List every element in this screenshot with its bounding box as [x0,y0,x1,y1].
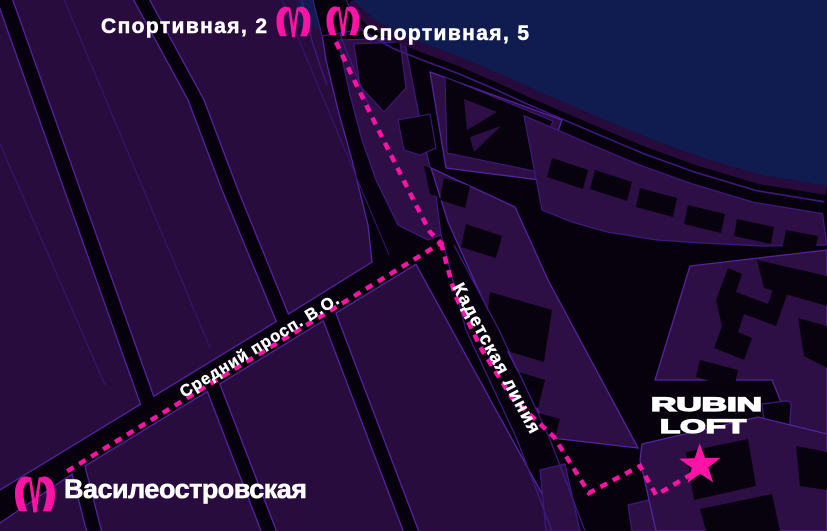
svg-text:RUBIN: RUBIN [651,394,762,416]
svg-text:Василеостровская: Василеостровская [64,474,307,504]
svg-text:Спортивная, 5: Спортивная, 5 [363,22,531,45]
svg-text:Спортивная, 2: Спортивная, 2 [101,15,269,38]
svg-text:LOFT: LOFT [660,416,746,438]
